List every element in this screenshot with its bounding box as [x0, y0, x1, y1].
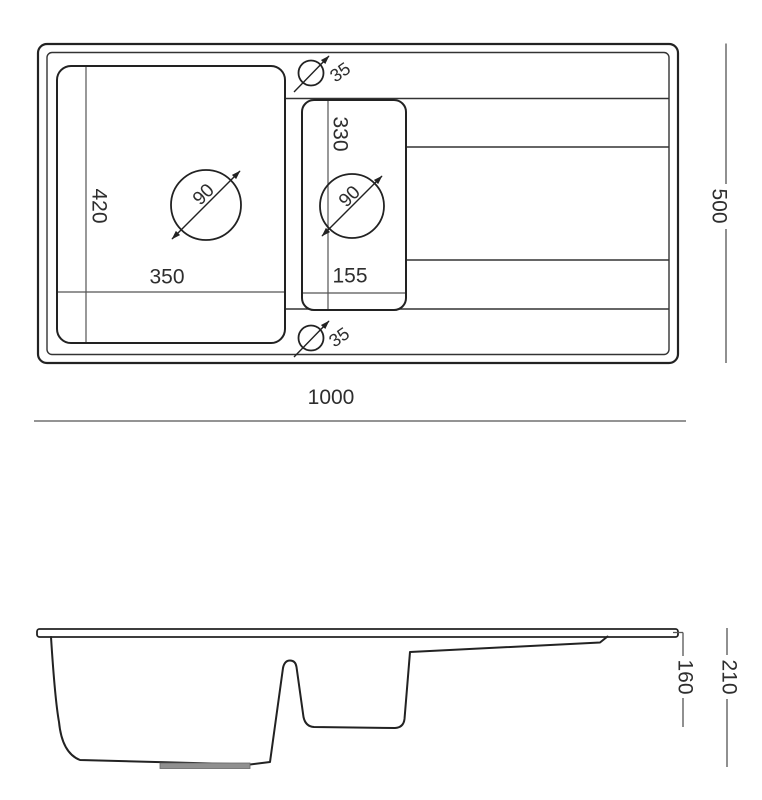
drawing-canvas: 35 35 420 350 90 330 155 90 500 1000	[0, 0, 762, 800]
side-view: 160 210	[37, 628, 741, 769]
overall-depth-side-dimension: 210	[718, 628, 741, 767]
overall-width-dimension: 1000	[34, 386, 686, 421]
main-bowl-width-label: 350	[149, 265, 184, 288]
main-bowl-depth-label: 420	[88, 188, 111, 223]
second-bowl-depth-dimension: 160	[673, 633, 697, 728]
overall-depth-dimension: 500	[708, 44, 731, 364]
top-view: 35 35 420 350 90 330 155 90 500 1000	[34, 44, 731, 422]
overall-width-label: 1000	[308, 386, 355, 409]
overall-depth-side-label: 210	[718, 659, 741, 694]
side-rim	[37, 629, 678, 637]
side-profile	[51, 637, 608, 765]
second-bowl-width-label: 155	[332, 264, 367, 287]
drain-fitting	[160, 763, 250, 769]
second-bowl-depth-label: 330	[329, 116, 352, 151]
overall-depth-label: 500	[708, 188, 731, 223]
second-bowl-depth-side-label: 160	[674, 659, 697, 694]
sink-technical-drawing: 35 35 420 350 90 330 155 90 500 1000	[0, 0, 762, 800]
